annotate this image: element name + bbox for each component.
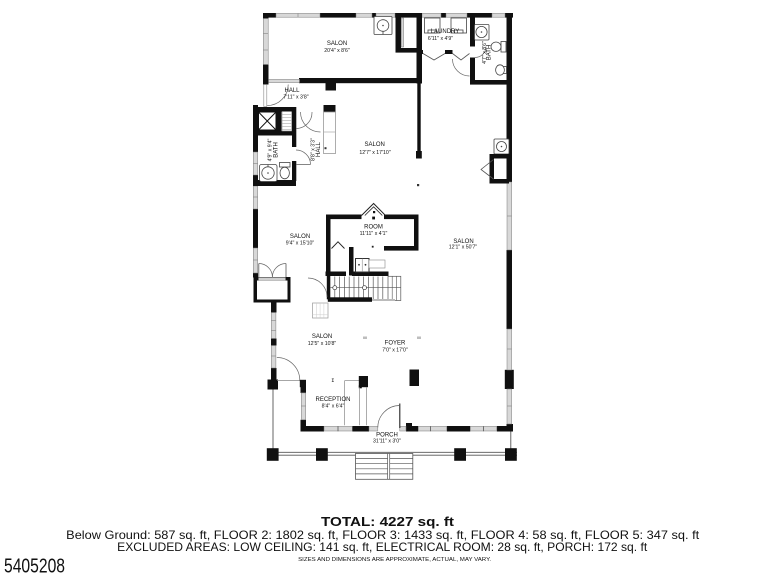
svg-text:ROOM: ROOM — [364, 225, 383, 231]
svg-text:7'11" x 3'8": 7'11" x 3'8" — [283, 95, 308, 101]
svg-text:BATH: BATH — [274, 142, 280, 158]
svg-text:31'11" x 3'0": 31'11" x 3'0" — [373, 439, 401, 445]
svg-text:RECEPTION: RECEPTION — [315, 397, 350, 403]
svg-text:SALON: SALON — [365, 142, 385, 148]
svg-text:11'11" x 4'1": 11'11" x 4'1" — [360, 231, 388, 237]
svg-text:SALON: SALON — [290, 234, 310, 240]
svg-text:SIZES AND DIMENSIONS ARE APPRO: SIZES AND DIMENSIONS ARE APPROXIMATE, AC… — [298, 557, 491, 563]
svg-text:SALON: SALON — [312, 334, 332, 340]
svg-text:20'4" x 8'6": 20'4" x 8'6" — [324, 48, 350, 54]
svg-text:LAUNDRY: LAUNDRY — [431, 29, 460, 35]
svg-text:9'4" x 15'10": 9'4" x 15'10" — [286, 241, 315, 247]
svg-text:SALON: SALON — [327, 41, 347, 47]
svg-text:6'11" x 4'9": 6'11" x 4'9" — [428, 36, 453, 42]
svg-text:TOTAL: 4227 sq. ft: TOTAL: 4227 sq. ft — [321, 514, 455, 529]
svg-text:HALL: HALL — [316, 141, 322, 157]
svg-text:EXCLUDED AREAS: LOW CEILING: 1: EXCLUDED AREAS: LOW CEILING: 141 sq. ft,… — [117, 541, 648, 554]
svg-text:8'8" x 3'3": 8'8" x 3'3" — [311, 138, 317, 161]
svg-text:FOYER: FOYER — [385, 341, 406, 347]
svg-text:HALL: HALL — [284, 88, 300, 94]
svg-text:8'4" x 6'4": 8'4" x 6'4" — [322, 404, 345, 410]
svg-text:12'1" x 50'7": 12'1" x 50'7" — [449, 245, 478, 251]
svg-text:4'9" x 9'4": 4'9" x 9'4" — [268, 139, 274, 162]
svg-text:5405208: 5405208 — [4, 556, 65, 576]
svg-text:12'5" x 10'8": 12'5" x 10'8" — [308, 341, 337, 347]
svg-text:12'7" x 17'10": 12'7" x 17'10" — [359, 150, 390, 156]
svg-text:4'7" x 8'6": 4'7" x 8'6" — [482, 41, 488, 64]
svg-text:7'0" x 17'0": 7'0" x 17'0" — [382, 348, 408, 354]
